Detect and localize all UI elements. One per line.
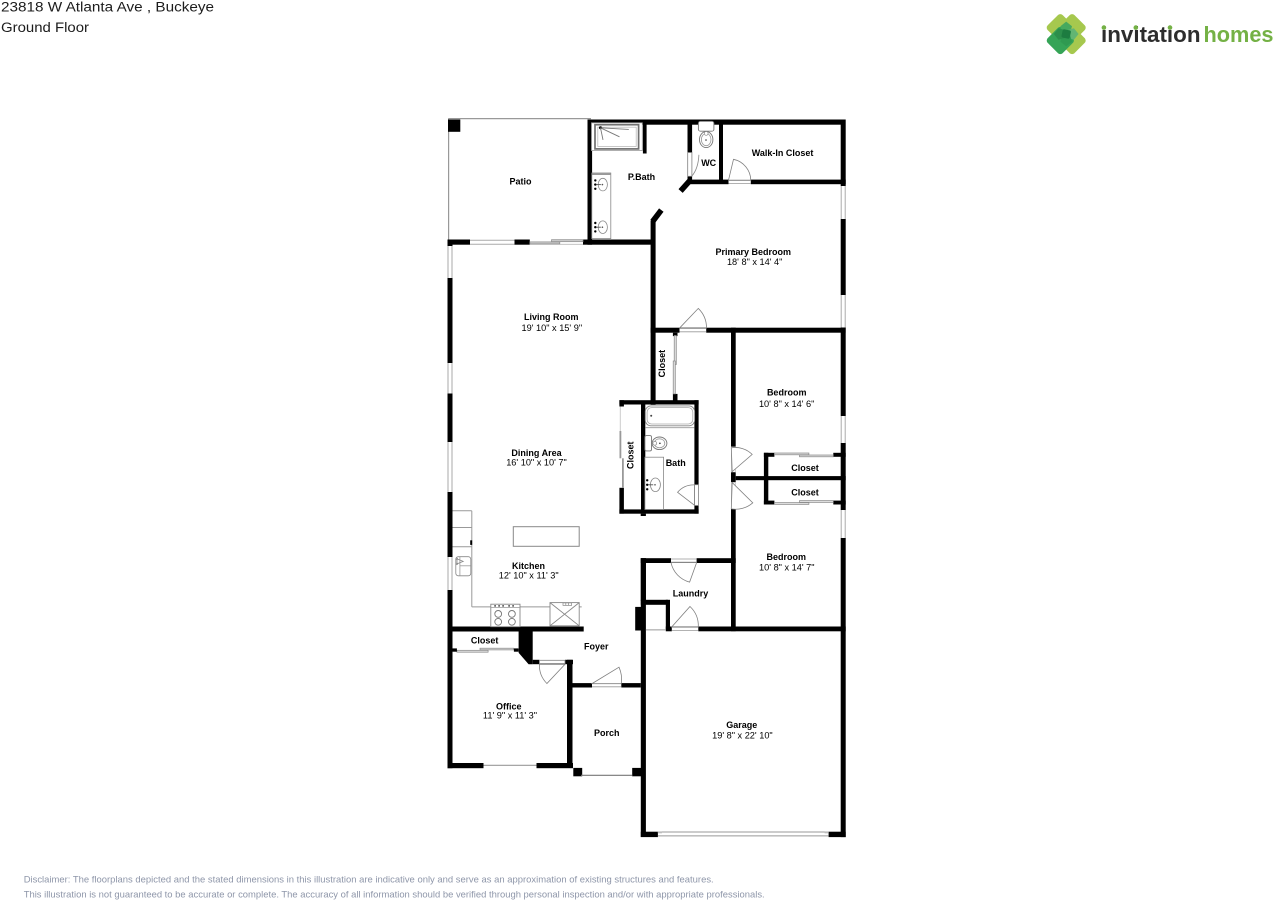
svg-text:Primary Bedroom: Primary Bedroom [716, 247, 792, 257]
svg-text:invitation: invitation [1101, 22, 1201, 47]
svg-text:Bedroom: Bedroom [767, 388, 807, 398]
svg-text:18' 8" x 14' 4": 18' 8" x 14' 4" [727, 257, 783, 267]
svg-text:Garage: Garage [726, 720, 757, 730]
svg-text:Walk-In Closet: Walk-In Closet [752, 148, 814, 158]
svg-text:WC: WC [701, 158, 716, 168]
svg-text:Closet: Closet [791, 463, 819, 473]
svg-text:Disclaimer: The floorplans dep: Disclaimer: The floorplans depicted and … [24, 875, 714, 886]
svg-text:Closet: Closet [657, 350, 667, 378]
svg-text:23818 W Atlanta Ave , Buckeye: 23818 W Atlanta Ave , Buckeye [1, 0, 214, 16]
svg-text:10' 8" x 14' 6": 10' 8" x 14' 6" [759, 399, 815, 409]
svg-text:Closet: Closet [625, 441, 635, 469]
svg-text:Laundry: Laundry [673, 589, 709, 599]
svg-text:Bath: Bath [666, 458, 686, 468]
svg-text:Patio: Patio [509, 176, 532, 186]
svg-text:P.Bath: P.Bath [628, 172, 655, 182]
svg-text:Living Room: Living Room [524, 312, 579, 322]
svg-text:12' 10" x 11' 3": 12' 10" x 11' 3" [499, 571, 559, 581]
svg-text:Porch: Porch [594, 728, 620, 738]
svg-text:homes: homes [1204, 22, 1274, 47]
svg-text:19' 10" x 15' 9": 19' 10" x 15' 9" [521, 323, 582, 333]
svg-text:This illustration is not guara: This illustration is not guaranteed to b… [24, 890, 765, 901]
svg-text:Ground Floor: Ground Floor [1, 20, 89, 36]
svg-text:Dining Area: Dining Area [511, 448, 562, 458]
svg-text:19' 8" x 22' 10": 19' 8" x 22' 10" [712, 730, 773, 740]
svg-text:11' 9" x 11' 3": 11' 9" x 11' 3" [483, 711, 537, 721]
svg-text:Closet: Closet [471, 636, 499, 646]
svg-text:Closet: Closet [791, 487, 819, 497]
svg-text:Kitchen: Kitchen [512, 561, 545, 571]
svg-text:Foyer: Foyer [584, 642, 609, 652]
svg-text:10' 8" x 14' 7": 10' 8" x 14' 7" [759, 562, 815, 572]
svg-text:16' 10" x 10' 7": 16' 10" x 10' 7" [506, 458, 567, 468]
svg-text:Bedroom: Bedroom [767, 552, 807, 562]
